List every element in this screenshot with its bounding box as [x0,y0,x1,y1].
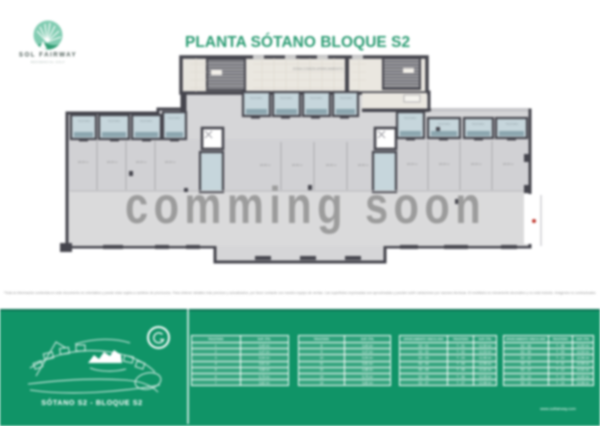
svg-text:18.04 m: 18.04 m [107,160,118,164]
svg-text:18.04 m: 18.04 m [165,160,176,164]
svg-text:TRASTERO: TRASTERO [249,97,262,100]
svg-text:TRASTERO: TRASTERO [167,117,180,120]
svg-text:18.06 m: 18.06 m [260,163,271,167]
svg-text:18.04 m: 18.04 m [136,160,147,164]
svg-text:18.04 m: 18.04 m [471,162,482,166]
svg-text:ZONA COMÚN APARCAMIENTO: ZONA COMÚN APARCAMIENTO [293,66,344,71]
svg-text:www.solfairway.com: www.solfairway.com [540,406,576,411]
svg-text:TRASTERO: TRASTERO [437,123,450,126]
svg-text:SÓTANO S2 - BLOQUE S2: SÓTANO S2 - BLOQUE S2 [41,398,143,407]
svg-text:18.06 m: 18.06 m [358,163,369,167]
svg-text:18.04 m: 18.04 m [78,160,89,164]
svg-text:TRASTERO: TRASTERO [339,97,352,100]
svg-text:18.06 m: 18.06 m [326,163,337,167]
svg-text:18.04 m: 18.04 m [439,162,450,166]
svg-text:TRASTERO: TRASTERO [309,97,322,100]
svg-text:TRASTERO: TRASTERO [139,120,152,123]
svg-text:TRASTERO: TRASTERO [279,97,292,100]
svg-text:TRASTERO: TRASTERO [403,117,416,120]
svg-text:18.06 m: 18.06 m [292,163,303,167]
svg-text:TRASTERO: TRASTERO [471,123,484,126]
svg-text:TRASTERO: TRASTERO [77,120,90,123]
svg-text:TRASTERO: TRASTERO [505,123,518,126]
svg-text:TRASTERO: TRASTERO [107,120,120,123]
svg-text:18.04 m: 18.04 m [503,162,514,166]
svg-text:18.04 m: 18.04 m [407,162,418,166]
